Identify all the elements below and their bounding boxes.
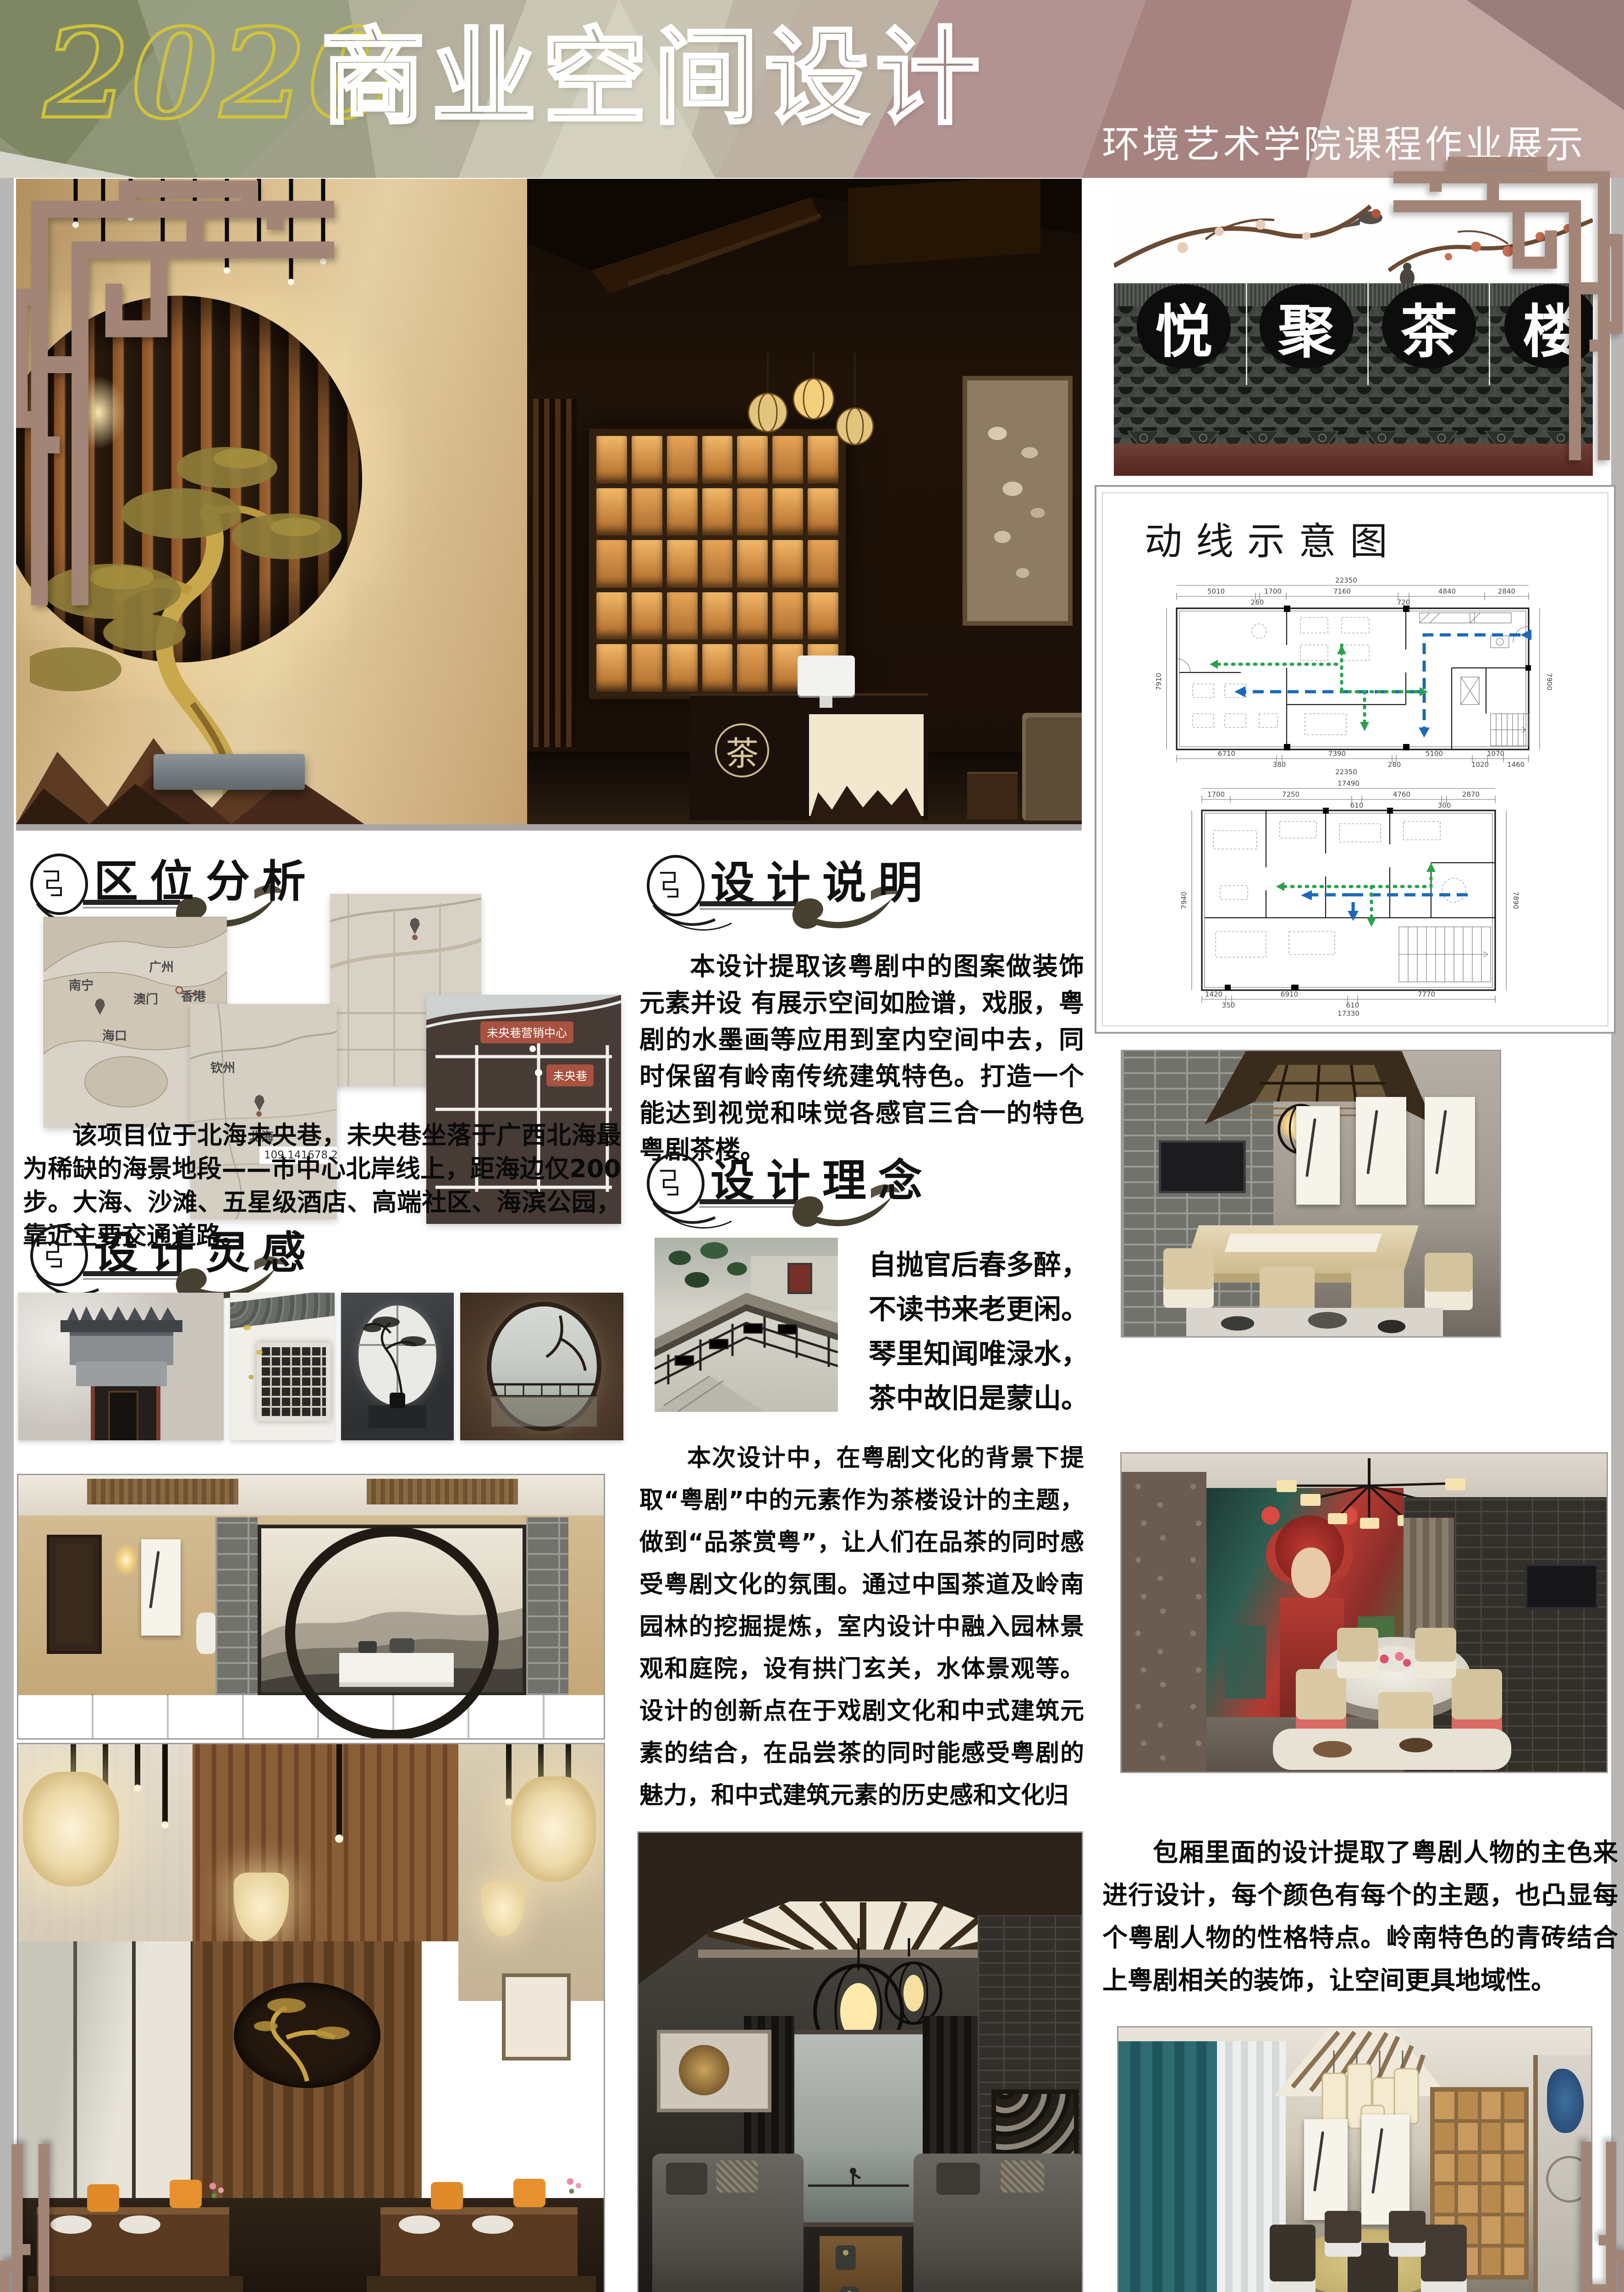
svg-text:5010: 5010 bbox=[1207, 587, 1225, 595]
svg-text:22350: 22350 bbox=[1335, 768, 1357, 776]
svg-text:610: 610 bbox=[1350, 801, 1364, 810]
logo-separator bbox=[1367, 261, 1369, 385]
hero-bottom-rule bbox=[16, 824, 1082, 831]
svg-text:5100: 5100 bbox=[1426, 749, 1443, 758]
concept-paragraph: 本次设计中，在粤剧文化的背景下提取“粤剧”中的元素作为茶楼设计的主题，做到“品茶… bbox=[639, 1437, 1084, 1817]
svg-text:1460: 1460 bbox=[1507, 760, 1525, 769]
white-tea-bench bbox=[339, 1653, 454, 1682]
moon-arch-ring bbox=[275, 1526, 509, 1740]
svg-text:2870: 2870 bbox=[1462, 790, 1480, 799]
inspiration-image-stone-gate bbox=[18, 1293, 224, 1440]
rendering-moon-arch-entrance bbox=[17, 1474, 605, 1740]
svg-text:17330: 17330 bbox=[1338, 1009, 1360, 1018]
inspiration-image-lattice-window-wall bbox=[230, 1293, 335, 1440]
header-title: 商业空间设计 bbox=[321, 25, 986, 130]
section-inspiration: 设计灵感 bbox=[25, 1217, 346, 1304]
rendering-dark-private-lounge bbox=[637, 1831, 1083, 2292]
damask-panel bbox=[1122, 1472, 1206, 1773]
circulation-title: 动线示意图 bbox=[1145, 511, 1401, 565]
cowhide-rug bbox=[1273, 1729, 1511, 1770]
section-description-title: 设计说明 bbox=[710, 847, 934, 911]
floor-plan-level-2: 17490 1700 7250 610 4760 300 2870 1420 3… bbox=[1174, 780, 1541, 1019]
hero-rendering-tea-house-reception: 茶 bbox=[16, 179, 1082, 824]
hero-cage-pendant-lights bbox=[740, 353, 887, 490]
svg-text:1700: 1700 bbox=[1264, 587, 1282, 595]
svg-text:17490: 17490 bbox=[1338, 780, 1360, 788]
concept-poem: 自抛官后春多醉， 不读书来老更闲。 琴里知闻唯渌水， 茶中故旧是蒙山。 bbox=[869, 1243, 1089, 1421]
hero-wall-art-leaves bbox=[963, 376, 1073, 626]
svg-text:1070: 1070 bbox=[1487, 749, 1504, 758]
wall-tv bbox=[1525, 1564, 1598, 1609]
svg-text:4760: 4760 bbox=[1393, 790, 1410, 799]
svg-text:6910: 6910 bbox=[1281, 990, 1298, 998]
rendering-tea-room bbox=[1121, 1050, 1501, 1338]
wall-tv bbox=[1159, 1140, 1246, 1193]
map-label-guangzhou: 广州 bbox=[149, 957, 174, 975]
poem-line: 自抛官后春多醉， bbox=[869, 1243, 1089, 1288]
corner-fret-ornament-top-left bbox=[16, 179, 334, 614]
corner-fret-ornament-top-right bbox=[1393, 151, 1623, 468]
svg-text:7160: 7160 bbox=[1333, 587, 1351, 595]
spindle-chair bbox=[1270, 2225, 1316, 2292]
brick-pillar bbox=[526, 1517, 568, 1695]
svg-text:2840: 2840 bbox=[1498, 587, 1515, 595]
long-tea-table bbox=[820, 2236, 902, 2292]
hero-sofa bbox=[1022, 713, 1082, 821]
svg-text:7250: 7250 bbox=[1282, 790, 1299, 799]
svg-text:7770: 7770 bbox=[1418, 990, 1435, 998]
hero-slat-partition bbox=[533, 399, 577, 747]
svg-text:1420: 1420 bbox=[1205, 990, 1222, 998]
track-lights bbox=[46, 1744, 578, 1882]
hero-reception-counter: 茶 bbox=[690, 696, 928, 821]
hero-planter-box bbox=[154, 754, 305, 790]
svg-text:260: 260 bbox=[1251, 598, 1264, 606]
tea-character-seal: 茶 bbox=[715, 723, 769, 777]
floor-plan-level-1: 22350 5010 260 1700 7160 720 4840 2840 6… bbox=[1149, 576, 1564, 776]
svg-text:350: 350 bbox=[1222, 1001, 1235, 1009]
svg-text:7390: 7390 bbox=[1328, 749, 1346, 758]
concept-garden-photo bbox=[655, 1238, 838, 1412]
wood-armchair bbox=[1163, 1248, 1214, 1308]
map-label-aomen: 澳门 bbox=[133, 989, 158, 1007]
poster: 2020 商业空间设计 环境艺术学院课程作业展示 bbox=[0, 0, 1624, 2292]
hero-imac-computer bbox=[798, 656, 855, 696]
poem-line: 茶中故旧是蒙山。 bbox=[869, 1377, 1089, 1421]
map-label-xianggang: 香港 bbox=[181, 986, 206, 1004]
logo-char-yue: 悦 bbox=[1137, 284, 1231, 369]
section-inspiration-title: 设计灵感 bbox=[94, 1217, 318, 1281]
map-label-qinzhou: 钦州 bbox=[210, 1058, 235, 1076]
fabric-lantern bbox=[23, 1772, 119, 1886]
section-location-title: 区位分析 bbox=[94, 846, 318, 909]
section-concept: 设计理念 bbox=[642, 1145, 963, 1232]
svg-text:1700: 1700 bbox=[1207, 790, 1225, 799]
poem-line: 琴里知闻唯渌水， bbox=[869, 1332, 1089, 1377]
logo-char-ju: 聚 bbox=[1260, 284, 1354, 369]
hero-roof-eave bbox=[527, 179, 1082, 344]
framed-moon-art bbox=[657, 2030, 771, 2112]
svg-text:7900: 7900 bbox=[1545, 673, 1553, 690]
inspiration-image-moon-gate-lake bbox=[460, 1293, 623, 1440]
teal-curtain bbox=[1118, 2041, 1217, 2292]
inspiration-image-oval-window-plant bbox=[341, 1293, 454, 1440]
svg-text:7890: 7890 bbox=[1512, 892, 1520, 909]
svg-text:7940: 7940 bbox=[1180, 892, 1188, 909]
left-edge-strip bbox=[0, 178, 14, 2292]
svg-text:300: 300 bbox=[1438, 801, 1451, 810]
poem-line: 不读书来老更闲。 bbox=[869, 1288, 1089, 1332]
svg-text:380: 380 bbox=[1273, 760, 1286, 769]
ink-scroll-art bbox=[141, 1539, 181, 1636]
map-label-nanning: 南宁 bbox=[69, 975, 94, 993]
corner-fret-ornament-bottom-left bbox=[0, 2136, 211, 2292]
brick-pillar bbox=[215, 1517, 258, 1695]
svg-text:720: 720 bbox=[1397, 598, 1410, 606]
svg-text:280: 280 bbox=[1388, 760, 1401, 769]
svg-text:22350: 22350 bbox=[1335, 576, 1357, 584]
fabric-lantern bbox=[511, 1776, 596, 1882]
private-room-paragraph: 包厢里面的设计提取了粤剧人物的主色来进行设计，每个颜色有每个的主题，也凸显每个粤… bbox=[1102, 1831, 1618, 2002]
ink-splash-rug bbox=[1186, 1308, 1443, 1338]
svg-text:4840: 4840 bbox=[1438, 587, 1456, 595]
svg-text:1020: 1020 bbox=[1471, 760, 1489, 769]
framed-picture bbox=[502, 1973, 571, 2061]
header-banner: 2020 商业空间设计 环境艺术学院课程作业展示 bbox=[0, 0, 1624, 178]
circulation-diagram-panel: 动线示意图 22350 5010 260 1700 7160 720 4840 … bbox=[1095, 485, 1616, 1034]
svg-text:6710: 6710 bbox=[1218, 749, 1235, 758]
rendering-opera-private-room bbox=[1120, 1452, 1608, 1773]
svg-text:610: 610 bbox=[1346, 1001, 1360, 1009]
map-label-marketing-center: 未央巷营销中心 bbox=[480, 1021, 573, 1043]
description-paragraph: 本设计提取该粤剧中的图案做装饰元素并设 有展示空间如脸谱，戏服，粤剧的水墨画等应… bbox=[639, 948, 1084, 1168]
hero-side-table bbox=[967, 774, 1018, 820]
logo-separator bbox=[1246, 261, 1247, 385]
svg-text:7910: 7910 bbox=[1155, 673, 1163, 690]
corner-fret-ornament-bottom-right bbox=[1430, 2127, 1624, 2292]
map-label-weiyang-lane: 未央巷 bbox=[546, 1064, 594, 1086]
section-concept-title: 设计理念 bbox=[710, 1145, 934, 1209]
map-label-haikou: 海口 bbox=[102, 1026, 127, 1044]
section-description: 设计说明 bbox=[642, 847, 963, 934]
